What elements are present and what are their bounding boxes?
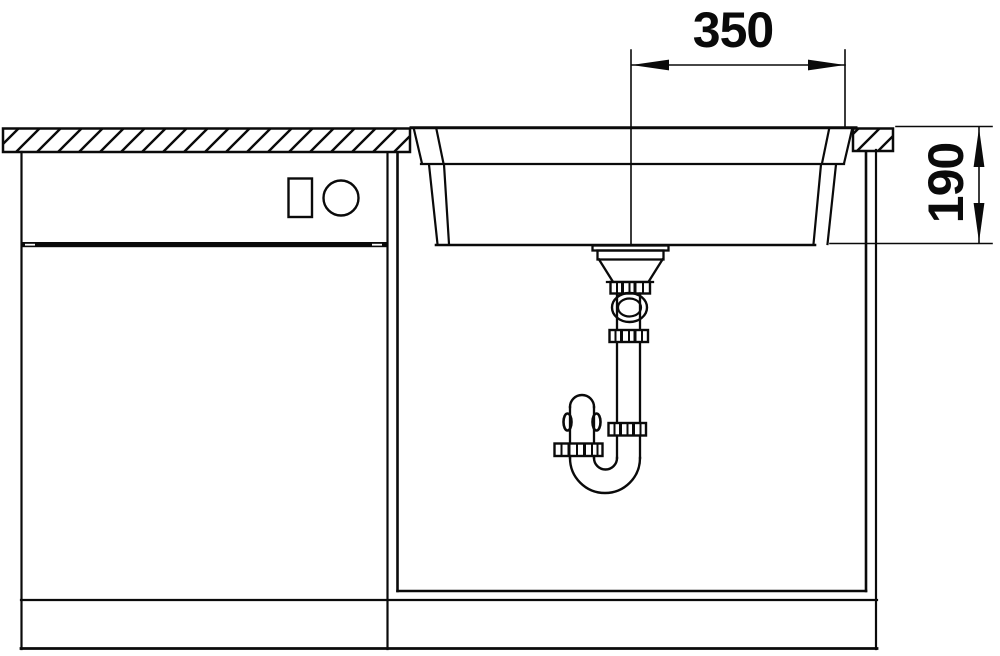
coupling-nut-riser <box>555 444 603 457</box>
riser-union-right <box>593 414 601 431</box>
countertop-left-slab <box>3 129 410 153</box>
left-cabinet-door-gap <box>21 242 388 247</box>
base-cabinets <box>21 150 877 649</box>
coupling-nut-lower <box>609 423 647 436</box>
dim-190-arrow-bottom <box>974 203 985 242</box>
sink-bowl <box>411 128 856 245</box>
countertop-right-slab <box>853 129 893 152</box>
riser-union-left <box>564 414 572 431</box>
drain-assembly <box>555 246 669 494</box>
dimension-350: 350 <box>631 2 845 245</box>
countertop <box>3 129 893 153</box>
coupling-nut-middle <box>610 330 649 342</box>
sink-installation-diagram: 350 190 <box>0 0 1000 656</box>
dim-350-label: 350 <box>693 2 773 58</box>
dim-190-label: 190 <box>918 143 974 223</box>
strainer-body <box>598 251 664 260</box>
control-knob <box>324 181 359 216</box>
dim-190-arrow-top <box>974 128 985 167</box>
dim-350-arrow-right <box>808 60 845 71</box>
control-switch <box>289 179 313 218</box>
technical-drawing-canvas: 350 190 <box>0 0 1000 656</box>
dim-350-arrow-left <box>632 60 669 71</box>
coupling-nut-top <box>611 282 651 294</box>
siphon-riser <box>564 395 601 444</box>
siphon-u-bend <box>570 456 640 493</box>
